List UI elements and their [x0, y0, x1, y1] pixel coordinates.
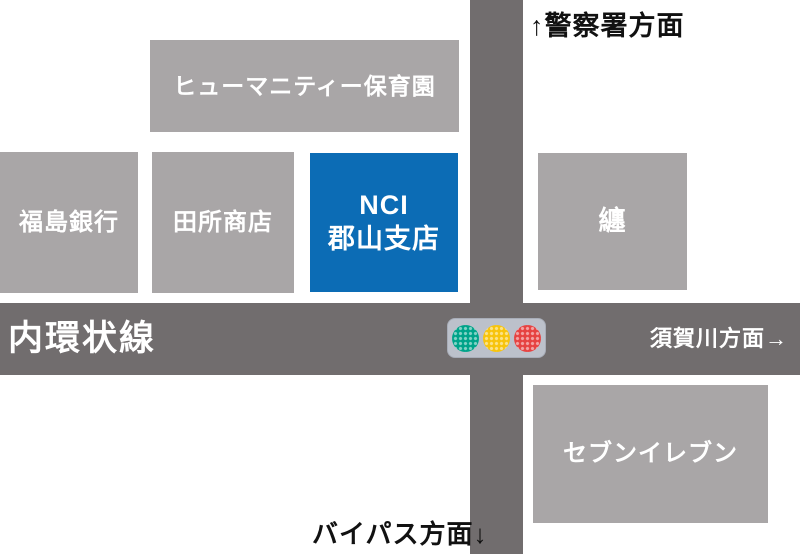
- building-nci-koriyama-branch: NCI 郡山支店: [310, 153, 458, 292]
- access-map: ヒューマニティー保育園 福島銀行 田所商店 NCI 郡山支店 纏 セブンイレブン…: [0, 0, 800, 554]
- building-seven-eleven-label: セブンイレブン: [563, 439, 738, 469]
- building-fukushima-bank-label: 福島銀行: [19, 208, 119, 238]
- traffic-light-icon: [447, 318, 546, 358]
- building-seven-eleven: セブンイレブン: [533, 385, 768, 523]
- direction-east-label: 須賀川方面→: [650, 303, 788, 375]
- building-nci-label-line2: 郡山支店: [328, 223, 440, 257]
- traffic-light-red-lamp: [514, 325, 541, 352]
- traffic-light-green-lamp: [452, 325, 479, 352]
- building-nursery: ヒューマニティー保育園: [150, 40, 459, 132]
- road-name-label: 内環状線: [8, 303, 156, 375]
- direction-north-label: ↑警察署方面: [530, 4, 685, 43]
- building-matoi-label: 纏: [599, 205, 627, 239]
- building-tadokoro-shoten-label: 田所商店: [173, 208, 273, 238]
- road-vertical: [470, 0, 523, 554]
- building-fukushima-bank: 福島銀行: [0, 152, 138, 293]
- building-matoi: 纏: [538, 153, 687, 290]
- building-nursery-label: ヒューマニティー保育園: [173, 72, 436, 101]
- building-nci-label-line1: NCI: [359, 189, 409, 223]
- building-tadokoro-shoten: 田所商店: [152, 152, 294, 293]
- traffic-light-yellow-lamp: [483, 325, 510, 352]
- direction-south-label: バイパス方面↓: [312, 514, 487, 551]
